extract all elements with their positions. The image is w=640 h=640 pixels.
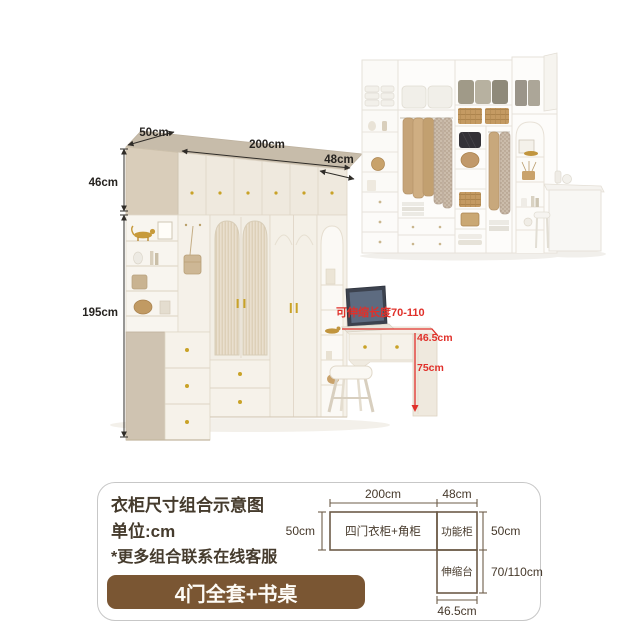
wardrobe-photo	[358, 52, 640, 265]
extendable-note: 可伸缩长度70-110	[336, 305, 425, 319]
hook-panel	[178, 215, 210, 332]
bust-decor	[134, 252, 143, 264]
fp-ext-label: 伸缩台	[441, 565, 473, 578]
corner-drawer-chest	[126, 332, 210, 440]
picture-frame	[158, 222, 172, 239]
fp-left-depth: 50cm	[286, 524, 315, 538]
fp-main-label: 四门衣柜+角柜	[345, 524, 421, 538]
photo-stool	[534, 212, 550, 218]
panel-title: 衣柜尺寸组合示意图	[111, 491, 264, 516]
product-dimension-infographic: 50cm 200cm 48cm 46cm 195cm 可伸缩长度70-110 4…	[0, 0, 640, 640]
bag-decor	[132, 275, 147, 289]
fp-func-label: 功能柜	[441, 525, 473, 538]
dim-depth-label: 50cm	[139, 127, 168, 139]
panel-note-line: *更多组合联系在线客服	[111, 543, 277, 567]
fp-main-width: 200cm	[365, 487, 401, 501]
desk-depth-label: 46.5cm	[417, 332, 453, 344]
panel-unit-line: 单位:cm	[111, 517, 175, 542]
fp-func-width: 48cm	[442, 487, 471, 501]
photo-unit-storage	[455, 60, 512, 253]
open-door	[544, 53, 557, 111]
center-drawers	[210, 360, 270, 417]
corner-shelf-column	[126, 215, 178, 332]
fp-ext-range: 70/110cm	[491, 565, 543, 579]
fp-right-depth: 50cm	[491, 524, 520, 538]
photo-unit-shelf-drawers	[362, 60, 398, 253]
dim-func-width-label: 48cm	[324, 154, 353, 166]
books-decor	[150, 251, 153, 265]
arched-glass-doors	[210, 215, 270, 360]
fp-ext-width: 46.5cm	[437, 604, 476, 618]
black-bag	[459, 132, 481, 148]
plain-doors	[270, 215, 317, 417]
floor-plan-dim-lines	[318, 499, 487, 604]
floor-plan: 200cm 48cm 50cm 50cm 70/110cm 46.5cm 四门衣…	[285, 483, 543, 623]
dim-width-label: 200cm	[249, 139, 285, 151]
photo-unit-hanging	[398, 60, 455, 253]
basket-decor	[134, 300, 152, 314]
dim-body-height-label: 195cm	[82, 307, 118, 319]
dim-top-height-label: 46cm	[89, 177, 118, 189]
photo-leopard	[524, 151, 538, 156]
hanging-bag	[184, 255, 201, 274]
desk-height-label: 75cm	[417, 362, 444, 374]
floor-plan-boxes	[330, 512, 477, 593]
